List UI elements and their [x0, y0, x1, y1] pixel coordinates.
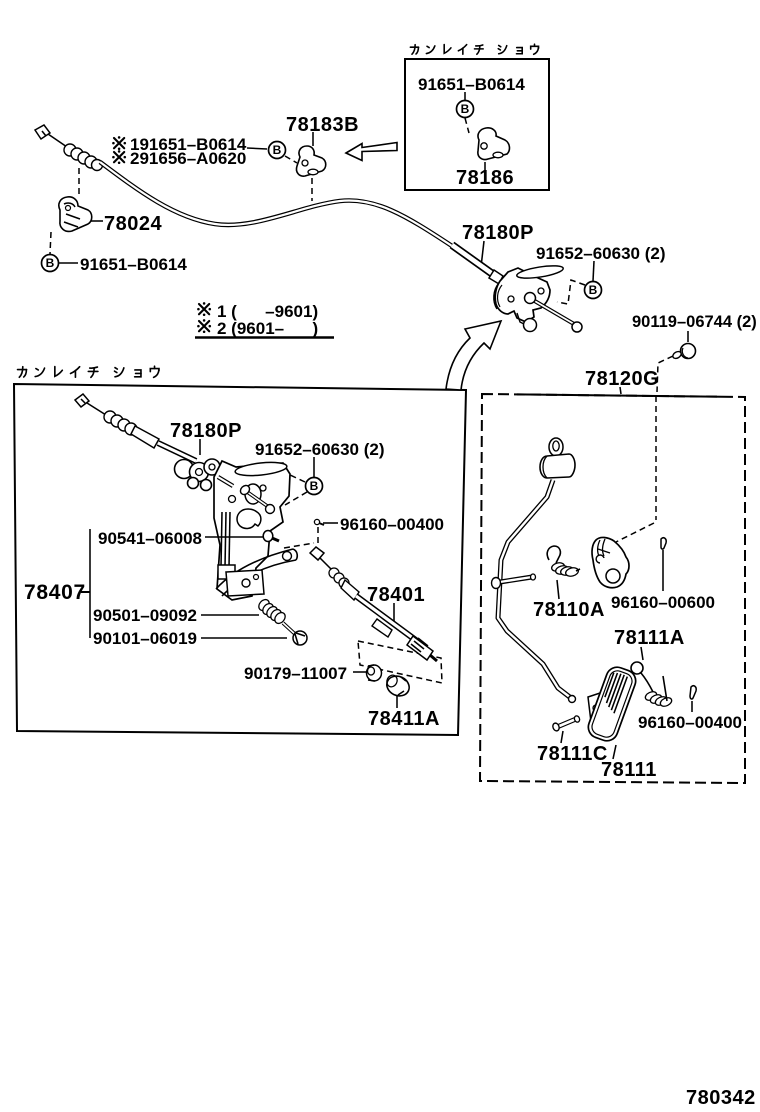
svg-text:78186: 78186 — [456, 167, 514, 189]
svg-text:96160–00400: 96160–00400 — [340, 515, 444, 534]
svg-text:78401: 78401 — [367, 584, 425, 606]
svg-text:78111A: 78111A — [614, 627, 685, 649]
svg-text:78111: 78111 — [601, 759, 657, 781]
svg-text:78110A: 78110A — [533, 599, 605, 621]
svg-text:780342: 780342 — [686, 1087, 756, 1109]
svg-text:90119–06744 (2): 90119–06744 (2) — [632, 313, 757, 331]
svg-text:78180P: 78180P — [170, 420, 242, 442]
svg-text:78024: 78024 — [104, 213, 162, 235]
svg-text:2 (9601– ): 2 (9601– ) — [217, 319, 318, 338]
svg-text:96160–00400: 96160–00400 — [638, 713, 742, 732]
svg-text:91652–60630 (2): 91652–60630 (2) — [255, 440, 385, 459]
svg-text:78411A: 78411A — [368, 708, 440, 730]
svg-text:90541–06008: 90541–06008 — [98, 529, 202, 548]
svg-text:78120G: 78120G — [585, 368, 659, 390]
svg-text:91651–B0614: 91651–B0614 — [418, 75, 525, 94]
svg-text:91651–B0614: 91651–B0614 — [80, 255, 187, 274]
svg-text:90179–11007: 90179–11007 — [244, 664, 347, 683]
svg-text:90501–09092: 90501–09092 — [93, 606, 197, 625]
svg-text:78183B: 78183B — [286, 114, 359, 136]
svg-text:90101–06019: 90101–06019 — [93, 629, 197, 648]
svg-text:78180P: 78180P — [462, 222, 534, 244]
svg-text:96160–00600: 96160–00600 — [611, 593, 715, 612]
svg-text:291656–A0620: 291656–A0620 — [130, 149, 246, 168]
svg-text:78111C: 78111C — [537, 743, 608, 765]
svg-text:78407: 78407 — [24, 581, 86, 604]
svg-text:91652–60630 (2): 91652–60630 (2) — [536, 244, 666, 263]
